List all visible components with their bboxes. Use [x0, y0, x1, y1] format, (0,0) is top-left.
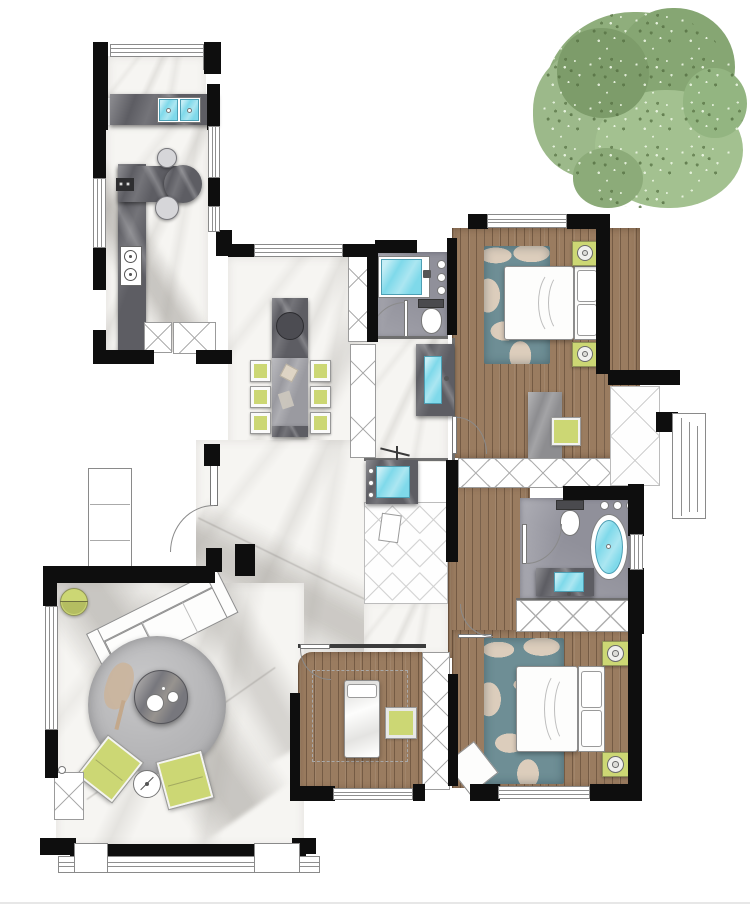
basin-bowl [424, 356, 442, 404]
vanity-basin [554, 572, 584, 592]
duvet-fold [548, 274, 574, 332]
bathtub-water [381, 259, 422, 295]
floor-plan [0, 0, 750, 914]
toilet-bowl [560, 510, 580, 536]
wall [45, 728, 58, 778]
bay-window [672, 413, 706, 519]
pillow [347, 684, 377, 698]
wardrobe-row [516, 600, 630, 632]
toilet-tank [418, 299, 444, 308]
tree-speckles [539, 10, 743, 208]
wall [596, 228, 610, 374]
wall [375, 240, 417, 253]
vanity-faucet [567, 592, 571, 596]
entry-door-leaf [210, 464, 218, 506]
wall [470, 784, 500, 801]
wall [106, 350, 154, 364]
wall [367, 250, 378, 342]
window-pillar [254, 843, 300, 873]
drain-dot [187, 108, 192, 113]
wall [93, 248, 106, 290]
wall [204, 42, 221, 74]
table-decor [161, 686, 166, 691]
switch-dot [126, 182, 130, 186]
toilet-tank [556, 500, 584, 510]
table-lamp [577, 245, 593, 261]
window [110, 44, 204, 57]
wall [590, 784, 642, 801]
table-lamp [607, 645, 624, 662]
basin-faucet [444, 376, 449, 381]
shelf-item [437, 260, 446, 269]
wall [228, 244, 254, 257]
window [630, 534, 643, 570]
utility-floor [364, 502, 448, 604]
drain-dot [166, 108, 171, 113]
landing-step-line [90, 504, 130, 505]
pillow [577, 270, 597, 302]
faucet-arm [396, 446, 398, 460]
tub-faucet [423, 270, 431, 278]
balcony-floor [108, 56, 206, 98]
wall [290, 693, 300, 788]
bay-closet [610, 386, 660, 486]
wall [290, 786, 335, 801]
wall [53, 566, 215, 583]
bar-stool [157, 148, 177, 168]
wall [468, 214, 488, 229]
wall [628, 634, 642, 786]
table-lamp [577, 346, 593, 362]
shelf-item [600, 501, 609, 510]
wall [207, 84, 220, 130]
tub-drain [606, 544, 611, 549]
wall [93, 330, 106, 364]
window [254, 244, 343, 257]
wall [448, 674, 458, 786]
wall [447, 238, 457, 335]
burner [124, 268, 137, 281]
utility-item [378, 513, 402, 544]
wall [608, 370, 680, 385]
wall [93, 42, 108, 130]
washer-knob [368, 492, 374, 498]
window [208, 126, 220, 178]
wall [563, 486, 637, 500]
pillow [581, 671, 602, 708]
window [333, 788, 413, 800]
wall [567, 214, 610, 229]
wall [196, 350, 232, 364]
cabinet-knob [58, 766, 66, 774]
pillow [581, 710, 602, 747]
landing-step-line [90, 540, 130, 541]
window [498, 786, 590, 799]
floor-lamp-stem [60, 601, 88, 602]
dining-chair [250, 360, 271, 382]
toilet-bowl [421, 308, 442, 334]
wall [235, 544, 255, 576]
wall [204, 444, 220, 466]
window [487, 214, 567, 228]
wall [93, 128, 106, 178]
wardrobe-row [458, 458, 628, 488]
dining-table-end [272, 426, 308, 437]
wardrobe-column [422, 652, 450, 790]
dining-chair [310, 386, 331, 408]
wall [413, 784, 425, 801]
wall [446, 460, 458, 562]
washer-knob [368, 468, 374, 474]
shelf-item [437, 286, 446, 295]
dining-chair [250, 386, 271, 408]
tall-cabinet [348, 256, 369, 342]
side-table-dot [145, 782, 149, 786]
shelf-item [613, 501, 622, 510]
burner [124, 250, 137, 263]
bay-window-line [697, 426, 698, 512]
window-pillar [74, 843, 108, 873]
bedside-chair [386, 708, 416, 738]
side-cabinet [54, 772, 84, 820]
washer-knob [368, 480, 374, 486]
duvet-fold [554, 676, 578, 742]
table-lamp [607, 756, 624, 773]
window [208, 206, 220, 232]
pillow [577, 304, 597, 336]
switch-dot [119, 182, 123, 186]
dining-chair [250, 412, 271, 434]
desk-chair [552, 418, 580, 445]
wall [628, 568, 644, 634]
dining-chair [310, 360, 331, 382]
bay-window-line [689, 422, 690, 512]
shelf-item [437, 273, 446, 282]
wall [43, 566, 57, 606]
entry-door-arc [170, 505, 214, 552]
wall [208, 178, 220, 206]
tree [533, 8, 750, 212]
ground-line [0, 902, 750, 904]
window [93, 178, 106, 248]
bar-stool [155, 196, 179, 220]
bay-window-line [681, 418, 682, 516]
island-basin [276, 312, 304, 340]
tall-cabinet [350, 344, 376, 458]
dining-chair [310, 412, 331, 434]
window [45, 606, 58, 730]
table-decor [167, 691, 179, 703]
table-decor [146, 694, 164, 712]
entry-landing [88, 468, 132, 578]
washer-top [376, 466, 410, 498]
kitchen-cabinet [144, 322, 172, 353]
